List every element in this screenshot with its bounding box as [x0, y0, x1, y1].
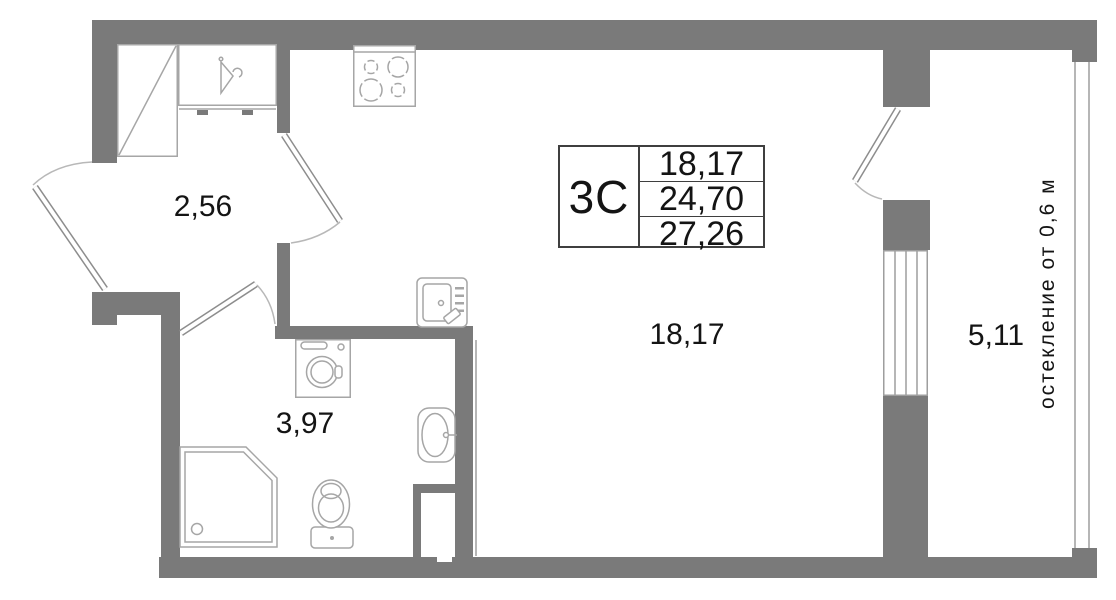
wall-shaft-left	[413, 484, 421, 558]
living-room-door	[284, 135, 340, 243]
balcony-area-label: 5,11	[968, 319, 1024, 353]
entrance-door	[33, 162, 105, 289]
wall-bottom-gap-mark	[437, 556, 452, 562]
wall-bathroom-left	[161, 312, 180, 578]
area-value-row: 27,26	[640, 217, 763, 251]
glazing-note: остекление от 0,6 м	[1036, 148, 1060, 438]
area-value-row: 18,17	[640, 147, 763, 182]
washing-machine	[296, 340, 351, 398]
living-kitchen-area-label: 18,17	[649, 318, 724, 352]
wall-balcony-bottom-right-post	[1072, 548, 1097, 558]
toilet	[311, 480, 353, 548]
area-value-row: 24,70	[640, 182, 763, 217]
bathroom-area-label: 3,97	[276, 407, 334, 441]
wall-bathroom-right	[455, 326, 473, 557]
hanger-closet	[179, 45, 277, 115]
wall-bathroom-top	[275, 326, 473, 339]
balcony-window	[884, 251, 928, 396]
wall-hallway-bottom-step	[92, 292, 117, 325]
area-values-column: 18,17 24,70 27,26	[640, 147, 763, 246]
wardrobe	[118, 45, 178, 157]
wall-hall-pier-bottom	[277, 243, 290, 332]
sink	[418, 408, 457, 462]
balcony-door	[855, 109, 898, 199]
area-info-table: 3С 18,17 24,70 27,26	[558, 145, 765, 248]
wall-balcony-pier-top	[883, 50, 930, 107]
unit-type-cell: 3С	[560, 147, 640, 246]
stove	[354, 46, 416, 107]
electrical-panel	[417, 278, 467, 327]
floor-plan: 2,56 3,97 18,17 5,11 остекление от 0,6 м…	[0, 0, 1116, 600]
wall-balcony-pier-mid	[883, 200, 930, 250]
wall-left-pier	[92, 20, 117, 163]
floor-plan-canvas	[0, 0, 1116, 600]
balcony-glazing-line	[1075, 62, 1089, 548]
shower	[180, 447, 277, 547]
bathroom-door	[181, 284, 275, 333]
hallway-area-label: 2,56	[174, 190, 232, 224]
wall-top-right-step	[1072, 50, 1097, 62]
wall-bottom	[159, 557, 1097, 578]
wall-balcony-pier-bottom	[883, 395, 928, 557]
wall-hall-pier-top	[277, 20, 290, 133]
